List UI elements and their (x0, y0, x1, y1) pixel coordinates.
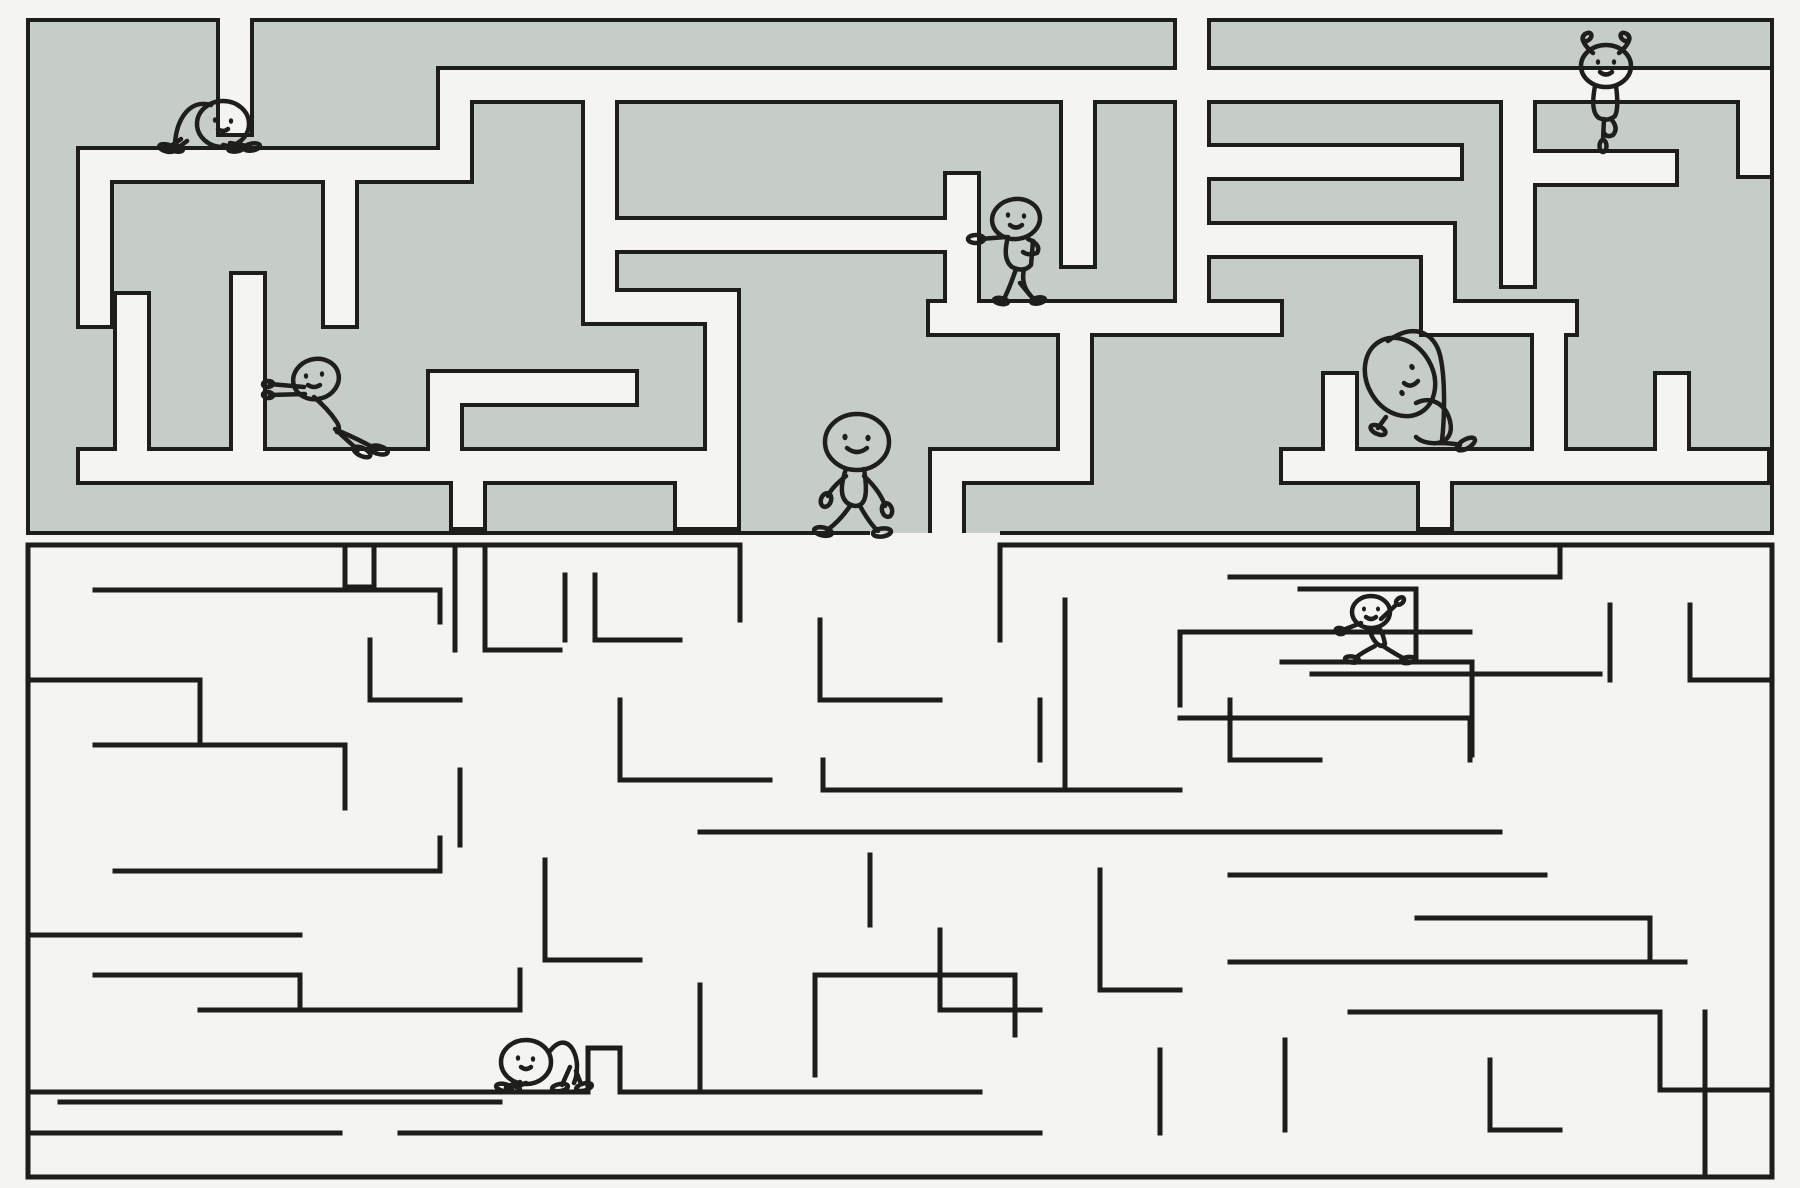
maze-illustration (0, 0, 1800, 1188)
maze-canvas (0, 0, 1800, 1188)
top-maze (28, 10, 1772, 548)
